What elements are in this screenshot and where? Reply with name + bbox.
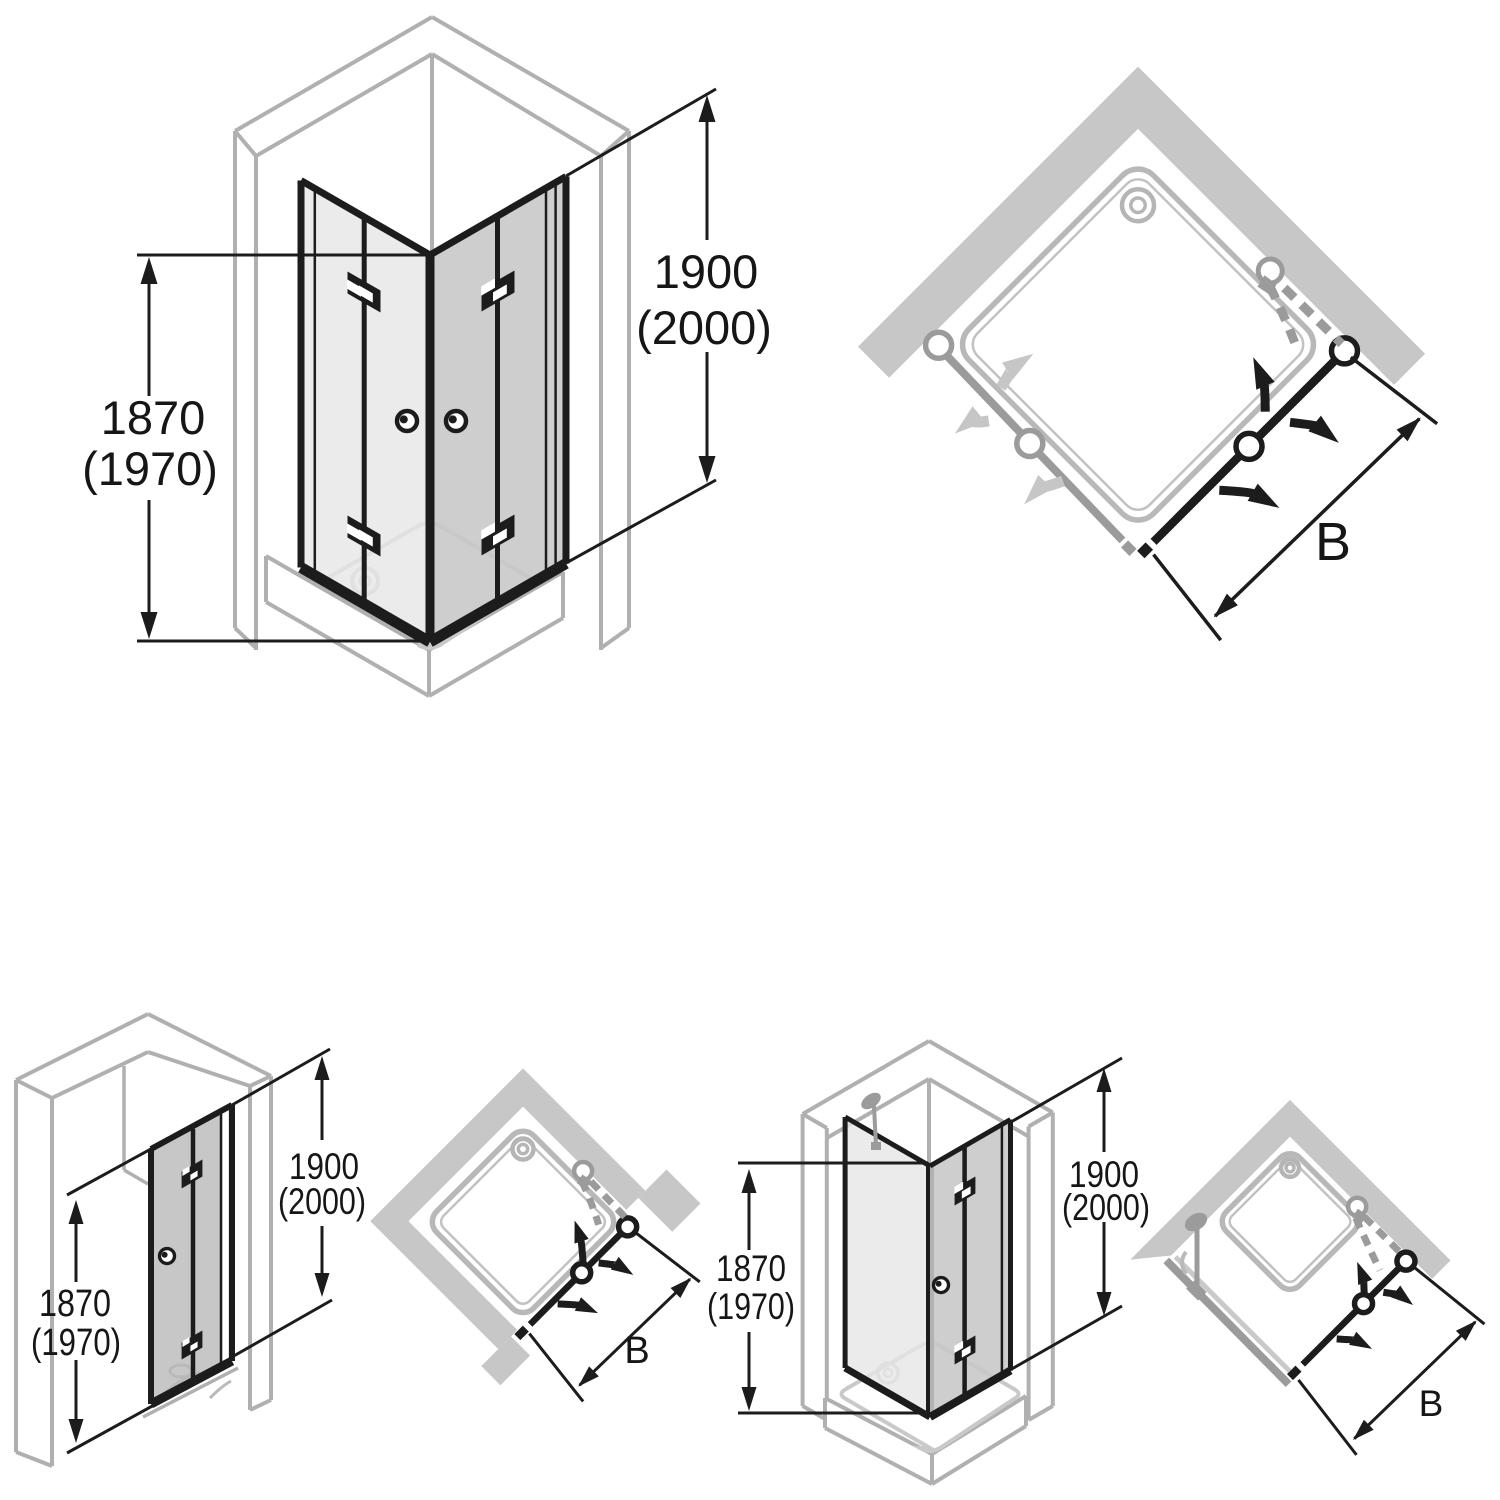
svg-text:B: B — [1315, 512, 1351, 572]
svg-text:(2000): (2000) — [636, 301, 772, 354]
svg-text:1870: 1870 — [101, 391, 206, 444]
svg-text:B: B — [624, 1330, 649, 1372]
svg-text:(1970): (1970) — [82, 442, 218, 495]
svg-text:(1970): (1970) — [31, 1322, 121, 1364]
svg-text:1870: 1870 — [716, 1248, 786, 1289]
svg-text:(2000): (2000) — [278, 1181, 366, 1222]
svg-text:(1970): (1970) — [707, 1286, 795, 1327]
svg-text:1870: 1870 — [39, 1283, 111, 1325]
svg-text:1900: 1900 — [654, 245, 759, 298]
svg-text:B: B — [1419, 1383, 1444, 1424]
svg-text:(2000): (2000) — [1062, 1187, 1150, 1228]
